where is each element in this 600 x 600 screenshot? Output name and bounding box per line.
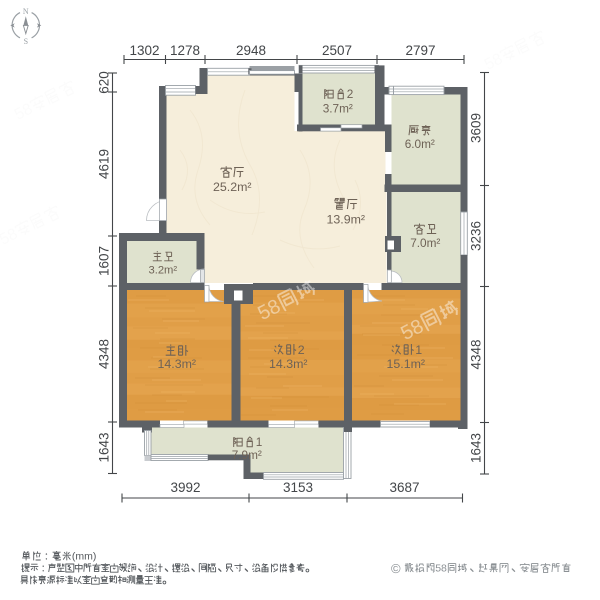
svg-text:14.3m²: 14.3m² [158,357,197,371]
svg-text:2507: 2507 [322,43,352,58]
svg-text:6.0m²: 6.0m² [405,137,435,151]
svg-text:58: 58 [435,563,447,575]
svg-text:N: N [23,7,29,16]
svg-text:(mm): (mm) [72,551,97,563]
svg-text:4348: 4348 [469,339,484,369]
svg-text:15.1m²: 15.1m² [387,357,426,371]
svg-text:2: 2 [298,343,305,357]
svg-text:3609: 3609 [469,113,484,143]
svg-text:©: © [391,561,401,576]
svg-text:7.0m²: 7.0m² [410,236,440,250]
svg-text:3153: 3153 [283,480,313,495]
svg-text:1302: 1302 [129,43,159,58]
svg-text:3.7m²: 3.7m² [323,102,353,116]
svg-text:13.9m²: 13.9m² [327,212,366,226]
svg-text:25.2m²: 25.2m² [213,180,252,194]
svg-text:S: S [24,37,28,46]
svg-text:1: 1 [256,435,263,449]
svg-text:4619: 4619 [97,149,112,179]
svg-text:1643: 1643 [469,433,484,463]
svg-text:3992: 3992 [170,480,200,495]
svg-text:1643: 1643 [97,432,112,462]
svg-text:7.9m²: 7.9m² [232,448,262,462]
svg-text:1: 1 [415,343,422,357]
svg-text:2: 2 [347,87,354,101]
svg-text:3236: 3236 [469,221,484,251]
svg-text:1278: 1278 [170,43,200,58]
svg-text:2948: 2948 [236,43,266,58]
svg-text:3.2m²: 3.2m² [149,264,178,276]
svg-text:14.3m²: 14.3m² [269,357,308,371]
svg-text:4348: 4348 [97,339,112,369]
svg-text:1607: 1607 [97,246,112,276]
svg-text:2797: 2797 [405,43,435,58]
svg-text:3687: 3687 [389,480,419,495]
svg-text:620: 620 [97,71,112,94]
